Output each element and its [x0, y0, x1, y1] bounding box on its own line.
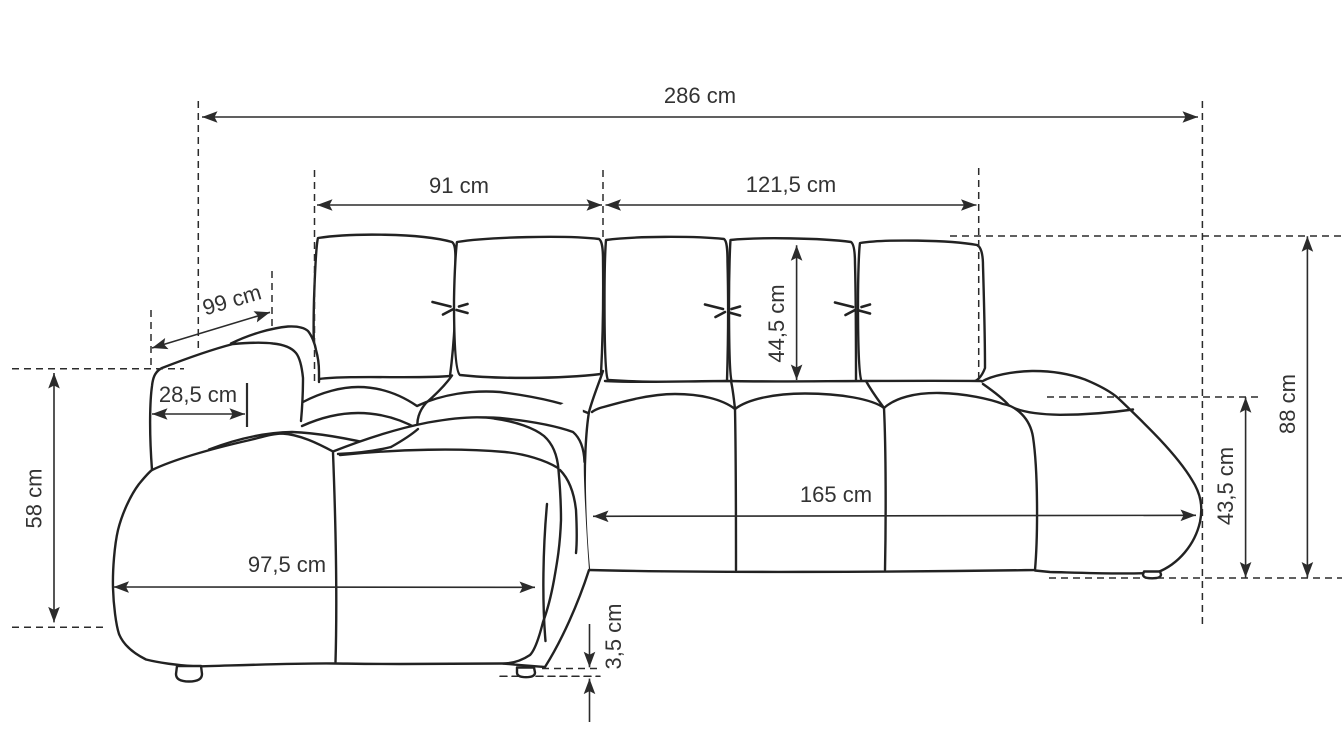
svg-text:165 cm: 165 cm	[800, 482, 872, 507]
svg-text:286 cm: 286 cm	[664, 83, 736, 108]
svg-text:3,5 cm: 3,5 cm	[601, 603, 626, 669]
svg-text:88 cm: 88 cm	[1275, 374, 1300, 434]
svg-text:28,5 cm: 28,5 cm	[159, 382, 237, 407]
svg-text:43,5 cm: 43,5 cm	[1213, 447, 1238, 525]
svg-text:97,5 cm: 97,5 cm	[248, 552, 326, 577]
svg-text:91 cm: 91 cm	[429, 173, 489, 198]
svg-text:44,5 cm: 44,5 cm	[764, 284, 789, 362]
svg-text:58 cm: 58 cm	[22, 469, 47, 529]
svg-text:99 cm: 99 cm	[200, 279, 265, 320]
svg-text:121,5 cm: 121,5 cm	[746, 172, 837, 197]
